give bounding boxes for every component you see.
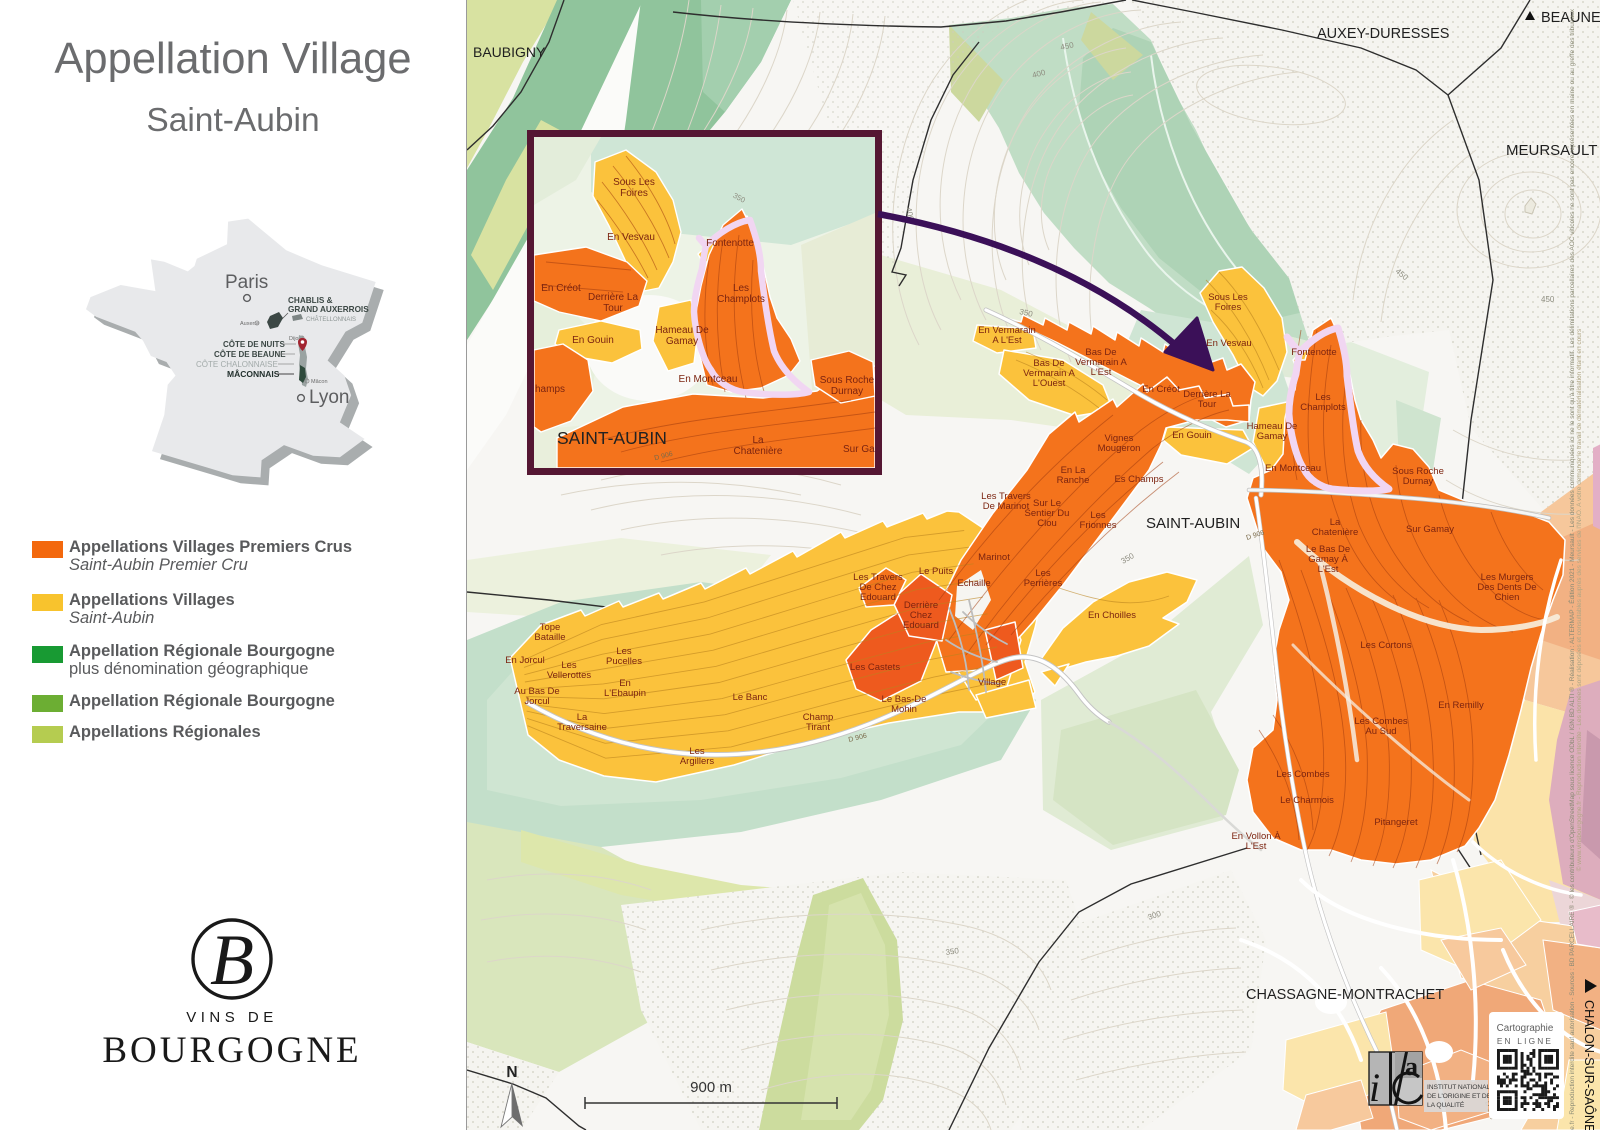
svg-text:Tirant: Tirant: [806, 722, 830, 733]
svg-text:Paris: Paris: [225, 272, 268, 293]
svg-text:Argillers: Argillers: [680, 756, 715, 767]
svg-text:Sur Gamay: Sur Gamay: [1406, 524, 1454, 535]
svg-text:Les: Les: [733, 283, 749, 294]
svg-text:DE L'ORIGINE ET DE: DE L'ORIGINE ET DE: [1427, 1093, 1492, 1100]
svg-text:Village: Village: [978, 677, 1006, 688]
svg-text:Champlots: Champlots: [717, 294, 765, 305]
svg-text:Le Banc: Le Banc: [733, 692, 768, 703]
svg-text:La: La: [752, 435, 764, 446]
svg-text:CHÂTELLONNAIS: CHÂTELLONNAIS: [306, 316, 356, 323]
svg-text:900 m: 900 m: [690, 1079, 732, 1096]
svg-text:CÔTE DE BEAUNE: CÔTE DE BEAUNE: [214, 350, 286, 359]
svg-text:Pitangeret: Pitangeret: [1374, 817, 1418, 828]
svg-text:Perrières: Perrières: [1024, 578, 1063, 589]
svg-text:Tour: Tour: [603, 303, 623, 314]
svg-text:450: 450: [1541, 295, 1555, 304]
svg-text:CHALON-SUR-SAÔNE: CHALON-SUR-SAÔNE: [1582, 1000, 1597, 1130]
svg-text:En Gouin: En Gouin: [572, 335, 614, 346]
svg-text:© www.vinsbourgogne.fr - Repro: © www.vinsbourgogne.fr - Reproduction in…: [1567, 8, 1576, 1130]
svg-text:a: a: [1405, 1052, 1418, 1081]
svg-text:Echaille: Echaille: [957, 578, 990, 589]
svg-text:BOURGOGNE: BOURGOGNE: [102, 1030, 361, 1071]
svg-text:GRAND AUXERROIS: GRAND AUXERROIS: [288, 305, 369, 314]
svg-text:En Vesvau: En Vesvau: [607, 232, 655, 243]
svg-text:© www.vinsbourgogne.fr - Repro: © www.vinsbourgogne.fr - Reproduction in…: [1575, 328, 1583, 871]
svg-text:CHASSAGNE-MONTRACHET: CHASSAGNE-MONTRACHET: [1246, 987, 1444, 1003]
svg-text:Fontenotte: Fontenotte: [706, 238, 754, 249]
svg-text:AUXEY-DURESSES: AUXEY-DURESSES: [1317, 26, 1449, 42]
svg-text:Les Combes: Les Combes: [1276, 769, 1330, 780]
svg-text:Fontenotte: Fontenotte: [1291, 347, 1336, 358]
svg-text:MÂCONNAIS: MÂCONNAIS: [227, 368, 280, 379]
svg-text:Mougeron: Mougeron: [1098, 443, 1141, 454]
svg-text:En Remilly: En Remilly: [1438, 700, 1484, 711]
svg-text:Le Puits: Le Puits: [919, 566, 954, 577]
svg-text:LA QUALITÉ: LA QUALITÉ: [1427, 1100, 1465, 1109]
svg-text:N: N: [506, 1064, 517, 1081]
svg-text:Mohin: Mohin: [891, 704, 917, 715]
svg-text:Edouard: Edouard: [860, 592, 896, 603]
svg-text:Lyon: Lyon: [309, 387, 350, 408]
svg-text:VINS DE: VINS DE: [186, 1009, 278, 1026]
svg-text:BAUBIGNY: BAUBIGNY: [473, 44, 546, 60]
svg-text:Jorcul: Jorcul: [524, 696, 549, 707]
svg-text:Foires: Foires: [620, 188, 648, 199]
svg-text:Traversaine: Traversaine: [557, 722, 607, 733]
svg-text:En Vesvau: En Vesvau: [1206, 338, 1251, 349]
svg-text:Sous Les: Sous Les: [613, 177, 655, 188]
svg-text:Vellerottes: Vellerottes: [547, 670, 592, 681]
svg-text:L'Ouest: L'Ouest: [1033, 378, 1066, 389]
svg-text:Mâcon: Mâcon: [311, 379, 328, 385]
svg-text:Pucelles: Pucelles: [606, 656, 642, 667]
svg-text:B: B: [210, 920, 254, 1000]
svg-text:Es Champs: Es Champs: [1114, 474, 1163, 485]
svg-text:Chatenière: Chatenière: [734, 446, 783, 457]
svg-text:En Jorcul: En Jorcul: [505, 655, 545, 666]
svg-text:CÔTE DE NUITS: CÔTE DE NUITS: [223, 340, 285, 349]
svg-text:Bataille: Bataille: [534, 632, 565, 643]
svg-text:Ranche: Ranche: [1057, 475, 1090, 486]
svg-text:hamps: hamps: [535, 384, 565, 395]
svg-text:Champlots: Champlots: [1300, 402, 1346, 413]
svg-text:Gamay: Gamay: [666, 336, 698, 347]
svg-text:De Marinot: De Marinot: [983, 501, 1030, 512]
svg-text:En Montceau: En Montceau: [679, 374, 738, 385]
svg-text:Auxerre: Auxerre: [240, 321, 259, 327]
svg-text:CÔTE CHALONNAISE: CÔTE CHALONNAISE: [196, 360, 278, 369]
svg-text:MEURSAULT: MEURSAULT: [1506, 142, 1597, 159]
svg-text:Le Charmois: Le Charmois: [1280, 795, 1334, 806]
svg-text:Tour: Tour: [1198, 399, 1216, 410]
svg-text:Sous Roche: Sous Roche: [820, 375, 875, 386]
svg-text:Les Cortons: Les Cortons: [1360, 640, 1411, 651]
svg-text:En Gouin: En Gouin: [1172, 430, 1212, 441]
svg-text:350: 350: [945, 946, 960, 957]
svg-text:Les Castets: Les Castets: [850, 662, 900, 673]
svg-text:Durnay: Durnay: [1403, 476, 1434, 487]
svg-text:L'Ebaupin: L'Ebaupin: [604, 688, 646, 699]
svg-text:Clou: Clou: [1037, 518, 1057, 529]
svg-text:i: i: [1369, 1065, 1380, 1110]
svg-text:L'Est: L'Est: [1091, 367, 1112, 378]
svg-text:L'Est: L'Est: [1246, 841, 1267, 852]
svg-text:En Choilles: En Choilles: [1088, 610, 1136, 621]
svg-text:Chatenière: Chatenière: [1312, 527, 1358, 538]
svg-text:Frionnes: Frionnes: [1080, 520, 1117, 531]
svg-text:EN LIGNE: EN LIGNE: [1497, 1036, 1553, 1046]
svg-text:Edouard: Edouard: [903, 620, 939, 631]
svg-text:L'Est: L'Est: [1318, 564, 1339, 575]
svg-text:Foires: Foires: [1215, 302, 1242, 313]
svg-text:Hameau De: Hameau De: [655, 325, 709, 336]
svg-text:En Créot: En Créot: [1142, 384, 1180, 395]
svg-text:Gamay: Gamay: [1257, 431, 1288, 442]
svg-text:En Créot: En Créot: [541, 283, 581, 294]
svg-text:SAINT-AUBIN: SAINT-AUBIN: [557, 428, 667, 448]
svg-text:CHABLIS &: CHABLIS &: [288, 296, 333, 305]
svg-text:Durnay: Durnay: [831, 386, 863, 397]
svg-text:Derrière La: Derrière La: [588, 292, 638, 303]
svg-text:INSTITUT NATIONAL: INSTITUT NATIONAL: [1427, 1084, 1490, 1091]
svg-text:Cartographie: Cartographie: [1497, 1023, 1554, 1034]
svg-text:Chien: Chien: [1495, 592, 1520, 603]
svg-text:Marinot: Marinot: [978, 552, 1010, 563]
svg-text:SAINT-AUBIN: SAINT-AUBIN: [1146, 515, 1240, 532]
svg-text:A L'Est: A L'Est: [992, 335, 1022, 346]
svg-text:En Montceau: En Montceau: [1265, 463, 1321, 474]
svg-text:Au Sud: Au Sud: [1365, 726, 1396, 737]
